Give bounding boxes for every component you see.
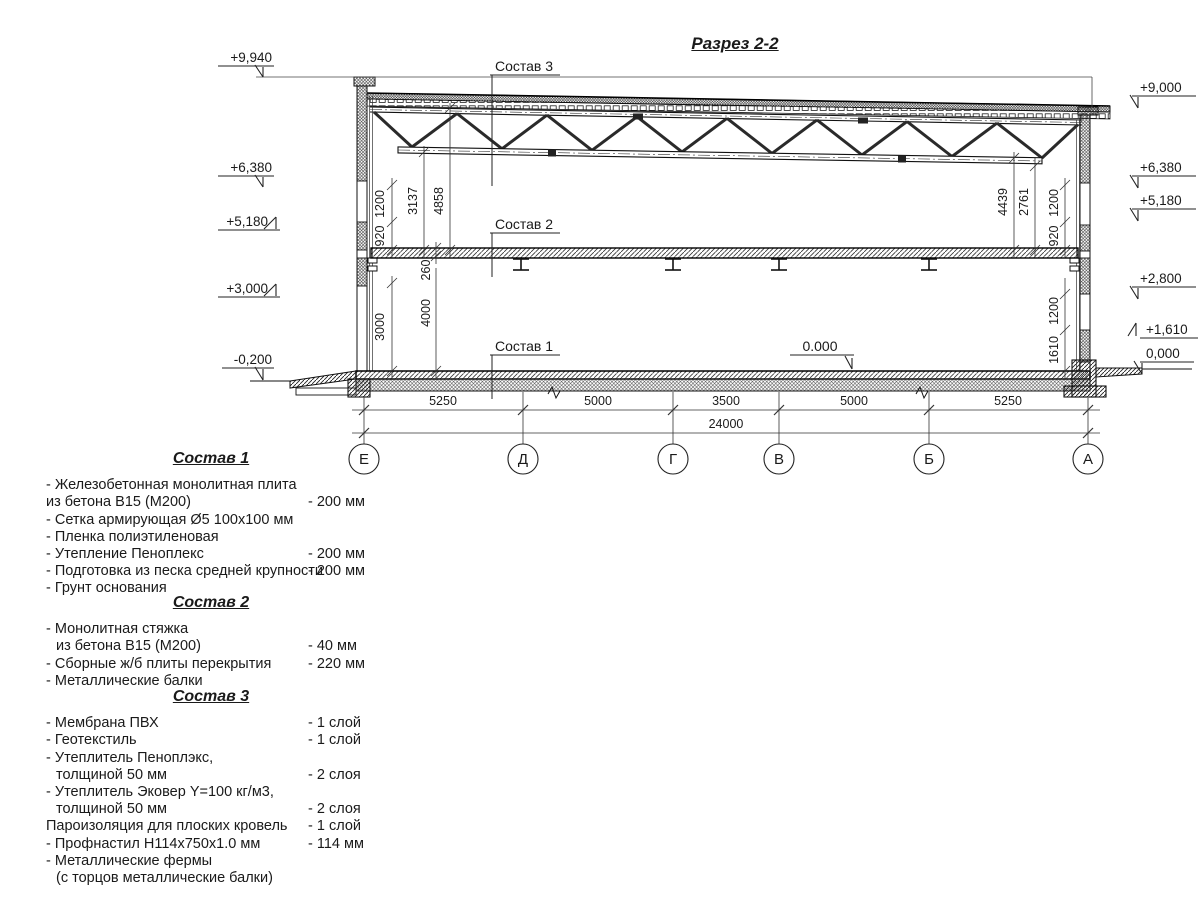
list-item: - Железобетонная монолитная плита	[46, 477, 376, 494]
axis-bubble: А	[1073, 444, 1103, 474]
svg-text:920: 920	[373, 226, 387, 247]
elevation-mark: +9,940	[218, 50, 274, 77]
list-item: - Пленка полиэтиленовая	[46, 529, 376, 546]
list-item: толщиной 50 мм- 2 слоя	[46, 801, 376, 818]
elevation-marks-right: +9,000 +6,380 +5,180 +2,800 +1,610 0,000	[1128, 80, 1198, 374]
svg-text:3137: 3137	[406, 187, 420, 215]
svg-text:Г: Г	[669, 451, 677, 468]
elevation-mark: +9,000	[1130, 80, 1196, 108]
svg-text:5000: 5000	[584, 394, 612, 408]
ground-floor	[250, 360, 1192, 398]
composition-list-2: Состав 2 - Монолитная стяжка из бетона В…	[46, 594, 376, 690]
svg-text:24000: 24000	[709, 417, 744, 431]
list-item: - Сборные ж/б плиты перекрытия- 220 мм	[46, 656, 376, 673]
list-item: (с торцов металлические балки)	[46, 870, 376, 887]
elevation-mark: +2,800	[1130, 271, 1196, 299]
right-wall	[1070, 107, 1098, 371]
list-item: - Геотекстиль- 1 слой	[46, 732, 376, 749]
list-item: Пароизоляция для плоских кровель- 1 слой	[46, 818, 376, 835]
list-item: - Металлические фермы	[46, 853, 376, 870]
list-item: - Сетка армирующая Ø5 100х100 мм	[46, 512, 376, 529]
elevation-mark: +6,380	[218, 160, 274, 187]
elevation-mark: +1,610	[1128, 322, 1198, 338]
vdims-right: 4439 2761 1200 920 1200 1610	[996, 152, 1070, 380]
elevation-mark: +3,000	[218, 281, 280, 297]
elevation-mark: 0,000	[1134, 346, 1194, 374]
svg-text:4439: 4439	[996, 188, 1010, 216]
roof-assembly	[367, 93, 1110, 125]
svg-text:Состав 3: Состав 3	[495, 58, 553, 74]
list-item: из бетона В15 (М200)- 200 мм	[46, 494, 376, 511]
drawing-sheet: Разрез 2-2	[0, 0, 1200, 900]
svg-text:0,000: 0,000	[1146, 346, 1180, 361]
axis-bubble: В	[764, 444, 794, 474]
axis-bubble: Б	[914, 444, 944, 474]
list-item: - Утеплитель Пеноплэкс,	[46, 750, 376, 767]
composition-title: Состав 3	[46, 688, 376, 705]
svg-text:+1,610: +1,610	[1146, 322, 1188, 337]
svg-text:0.000: 0.000	[802, 338, 837, 354]
elevation-mark: -0,200	[222, 352, 274, 380]
svg-text:4858: 4858	[432, 187, 446, 215]
elevation-mark: +6,380	[1130, 160, 1196, 188]
svg-text:+5,180: +5,180	[226, 214, 268, 229]
svg-text:+5,180: +5,180	[1140, 193, 1182, 208]
svg-text:-0,200: -0,200	[234, 352, 272, 367]
zero-level-mark: 0.000	[790, 338, 854, 369]
svg-text:+6,380: +6,380	[1140, 160, 1182, 175]
svg-text:+6,380: +6,380	[230, 160, 272, 175]
svg-text:3500: 3500	[712, 394, 740, 408]
svg-text:920: 920	[1047, 226, 1061, 247]
elevation-marks-left: +9,940 +6,380 +5,180 +3,000 -0,200	[218, 50, 280, 380]
bottom-dimensions: 5250 5000 3500 5000 5250 24000	[352, 392, 1100, 444]
elevation-mark: +5,180	[1130, 193, 1196, 221]
svg-text:3000: 3000	[373, 313, 387, 341]
axis-bubble: Г	[658, 444, 688, 474]
truss-bottom-chord	[398, 114, 1042, 164]
svg-text:5000: 5000	[840, 394, 868, 408]
axis-bubble: Д	[508, 444, 538, 474]
composition-list-3: Состав 3 - Мембрана ПВХ- 1 слой - Геотек…	[46, 688, 376, 887]
list-item: - Профнастил Н114х750х1.0 мм- 114 мм	[46, 836, 376, 853]
svg-text:4000: 4000	[419, 299, 433, 327]
floor-slab-level2	[371, 248, 1078, 270]
list-item: - Подготовка из песка средней крупности-…	[46, 563, 376, 580]
svg-text:1200: 1200	[1047, 189, 1061, 217]
axis-bubbles: Е Д Г В Б А	[349, 444, 1103, 474]
svg-text:1200: 1200	[1047, 297, 1061, 325]
list-item: толщиной 50 мм- 2 слоя	[46, 767, 376, 784]
callout-sostav2: Состав 2	[490, 216, 560, 277]
list-item: из бетона В15 (М200)- 40 мм	[46, 638, 376, 655]
svg-text:Б: Б	[924, 451, 934, 468]
svg-text:В: В	[774, 451, 784, 468]
svg-text:Состав 2: Состав 2	[495, 216, 553, 232]
svg-text:+2,800: +2,800	[1140, 271, 1182, 286]
svg-text:260: 260	[419, 260, 433, 281]
composition-list-1: Состав 1 - Железобетонная монолитная пли…	[46, 450, 376, 598]
svg-text:Д: Д	[518, 451, 528, 468]
svg-text:1610: 1610	[1047, 336, 1061, 364]
composition-title: Состав 2	[46, 594, 376, 611]
list-item: - Утепление Пеноплекс- 200 мм	[46, 546, 376, 563]
svg-text:5250: 5250	[429, 394, 457, 408]
svg-text:+9,000: +9,000	[1140, 80, 1182, 95]
svg-text:5250: 5250	[994, 394, 1022, 408]
svg-text:1200: 1200	[373, 190, 387, 218]
list-item: - Мембрана ПВХ- 1 слой	[46, 715, 376, 732]
svg-text:2761: 2761	[1017, 188, 1031, 216]
elevation-mark: +5,180	[218, 214, 280, 230]
composition-title: Состав 1	[46, 450, 376, 467]
svg-text:+9,940: +9,940	[230, 50, 272, 65]
list-item: - Утеплитель Эковер Y=100 кг/м3,	[46, 784, 376, 801]
svg-text:+3,000: +3,000	[226, 281, 268, 296]
svg-text:А: А	[1083, 451, 1093, 468]
svg-text:Состав 1: Состав 1	[495, 338, 553, 354]
list-item: - Монолитная стяжка	[46, 621, 376, 638]
